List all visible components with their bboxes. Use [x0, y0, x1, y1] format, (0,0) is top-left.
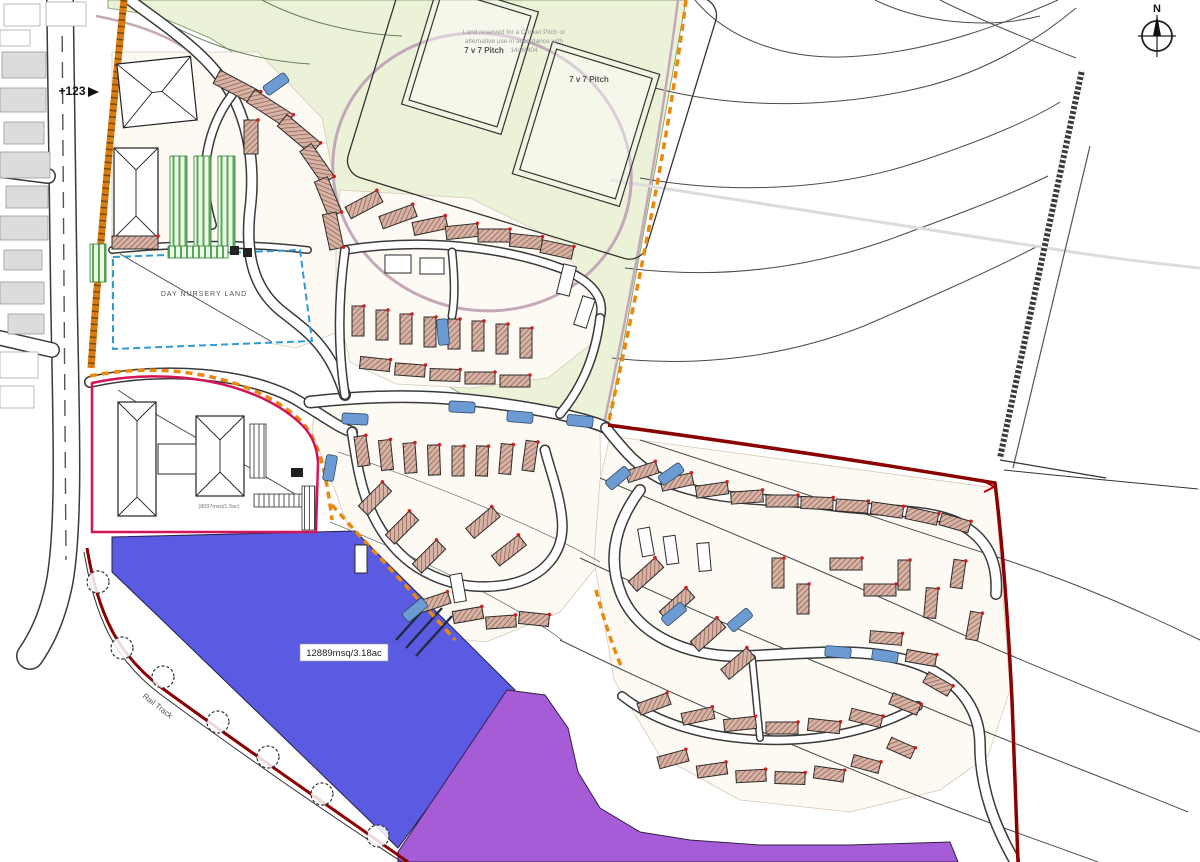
tree-symbol [207, 711, 229, 733]
terrace-building [772, 556, 786, 588]
tree-symbol [367, 825, 389, 847]
terrace-building [496, 322, 510, 354]
large-roof-building [196, 416, 244, 496]
tree-symbol [152, 666, 174, 688]
plot-marker-dot [528, 373, 532, 377]
existing-building [4, 250, 42, 270]
pitch2-label: 7 v 7 Pitch [569, 75, 609, 84]
existing-building [4, 122, 44, 144]
terrace-building [400, 312, 414, 344]
day-nursery-label: DAY NURSERY LAND [161, 291, 247, 298]
existing-building-outline [0, 30, 30, 46]
car-symbol [436, 319, 449, 346]
substation-block [243, 248, 252, 257]
car-symbol [507, 410, 534, 423]
existing-building-outline [0, 386, 34, 408]
house-building [385, 255, 411, 273]
house-building [355, 545, 367, 573]
plot-marker-dot [894, 582, 898, 586]
existing-building [0, 216, 48, 240]
existing-building [0, 282, 44, 304]
plot-marker-dot [458, 317, 462, 321]
terrace-building [472, 319, 486, 351]
terrace-building [500, 373, 532, 387]
car-symbol [566, 414, 593, 428]
terrace-building [465, 370, 497, 384]
terrace-building [830, 556, 864, 570]
terrace-building [766, 493, 800, 507]
site-plan-drawing: 12889msq/3.18acLand reserved for a Crick… [0, 0, 1200, 862]
tree-symbol [111, 637, 133, 659]
car-symbol [825, 645, 852, 658]
parking-bays-gray [254, 494, 302, 507]
plot-marker-dot [410, 312, 414, 316]
substation-block [291, 468, 303, 477]
terrace-building [244, 118, 260, 154]
spot-level-label: +123 [58, 84, 85, 98]
plot-marker-dot [462, 444, 466, 448]
terrace-building [112, 234, 160, 249]
plot-marker-dot [434, 315, 438, 319]
road-surface [452, 252, 454, 316]
plot-marker-dot [796, 493, 800, 497]
terrace-building [797, 582, 811, 614]
plot-marker-dot [860, 556, 864, 560]
large-roof-building [114, 148, 158, 238]
terrace-building [452, 444, 466, 476]
plot-marker-dot [807, 582, 811, 586]
large-roof-building [118, 402, 156, 516]
parking-bays [90, 244, 106, 282]
parking-bays [194, 156, 211, 252]
cricket-note-line2: alternative use in accordance with [465, 38, 563, 45]
parking-bays [218, 156, 235, 252]
terrace-building [424, 315, 438, 347]
existing-building [0, 152, 50, 178]
blue-area-label: 12889msq/3.18ac [306, 648, 382, 659]
plot-marker-dot [796, 720, 800, 724]
existing-building [8, 314, 44, 334]
tree-symbol [257, 746, 279, 768]
plot-marker-dot [386, 308, 390, 312]
car-symbol [342, 413, 369, 425]
tree-symbol [311, 783, 333, 805]
tree-symbol [87, 571, 109, 593]
existing-building [2, 52, 46, 78]
house-building [158, 444, 196, 474]
plot-marker-dot [506, 322, 510, 326]
terrace-building [448, 317, 462, 349]
site-plan-page: 12889msq/3.18acLand reserved for a Crick… [0, 0, 1200, 862]
existing-building [0, 88, 46, 112]
pitch1-label: 7 v 7 Pitch [464, 46, 504, 55]
existing-building [6, 186, 48, 208]
parking-bays-gray [250, 424, 266, 478]
plot-marker-dot [782, 556, 786, 560]
existing-building-outline [4, 4, 40, 26]
terrace-building [766, 720, 800, 734]
cricket-note-line1: Land reserved for a Cricket Pitch or [463, 29, 566, 36]
terrace-building [898, 558, 912, 590]
terrace-building [478, 227, 512, 242]
terrace-building [864, 582, 898, 596]
plot-marker-dot [362, 304, 366, 308]
large-roof-building [117, 56, 197, 127]
parking-bays [170, 156, 187, 252]
nursery-parcel [113, 250, 312, 349]
school-area-label: (8097msq/1.9ac) [198, 504, 239, 510]
plot-marker-dot [482, 319, 486, 323]
existing-building-outline [46, 2, 86, 26]
plot-marker-dot [508, 227, 512, 231]
terrace-building [352, 304, 366, 336]
terrace-building [520, 326, 534, 358]
house-building [420, 258, 444, 274]
terrace-building [376, 308, 390, 340]
plot-marker-dot [493, 370, 497, 374]
plot-marker-dot [530, 326, 534, 330]
plot-marker-dot [908, 558, 912, 562]
house-building [697, 543, 711, 572]
substation-block [230, 246, 239, 255]
plot-marker-dot [256, 118, 260, 122]
cricket-note-line3: 14/08404 [510, 47, 537, 54]
north-label: N [1153, 3, 1161, 15]
parking-bays [168, 246, 228, 258]
car-symbol [449, 401, 476, 413]
parking-bays-gray [302, 486, 315, 530]
existing-building-outline [0, 352, 38, 378]
plot-marker-dot [156, 234, 160, 238]
